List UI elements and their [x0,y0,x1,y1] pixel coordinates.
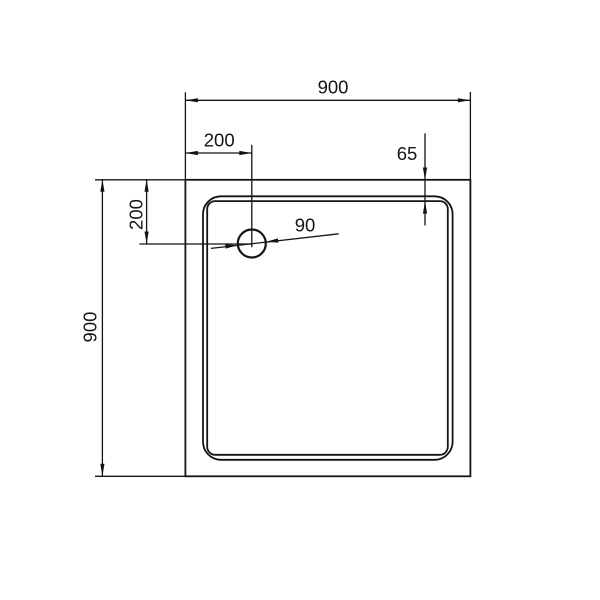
svg-text:200: 200 [204,130,235,151]
svg-text:900: 900 [79,312,100,343]
svg-text:65: 65 [397,143,418,164]
svg-text:90: 90 [295,215,316,236]
svg-text:900: 900 [318,77,349,98]
svg-text:200: 200 [125,199,146,230]
